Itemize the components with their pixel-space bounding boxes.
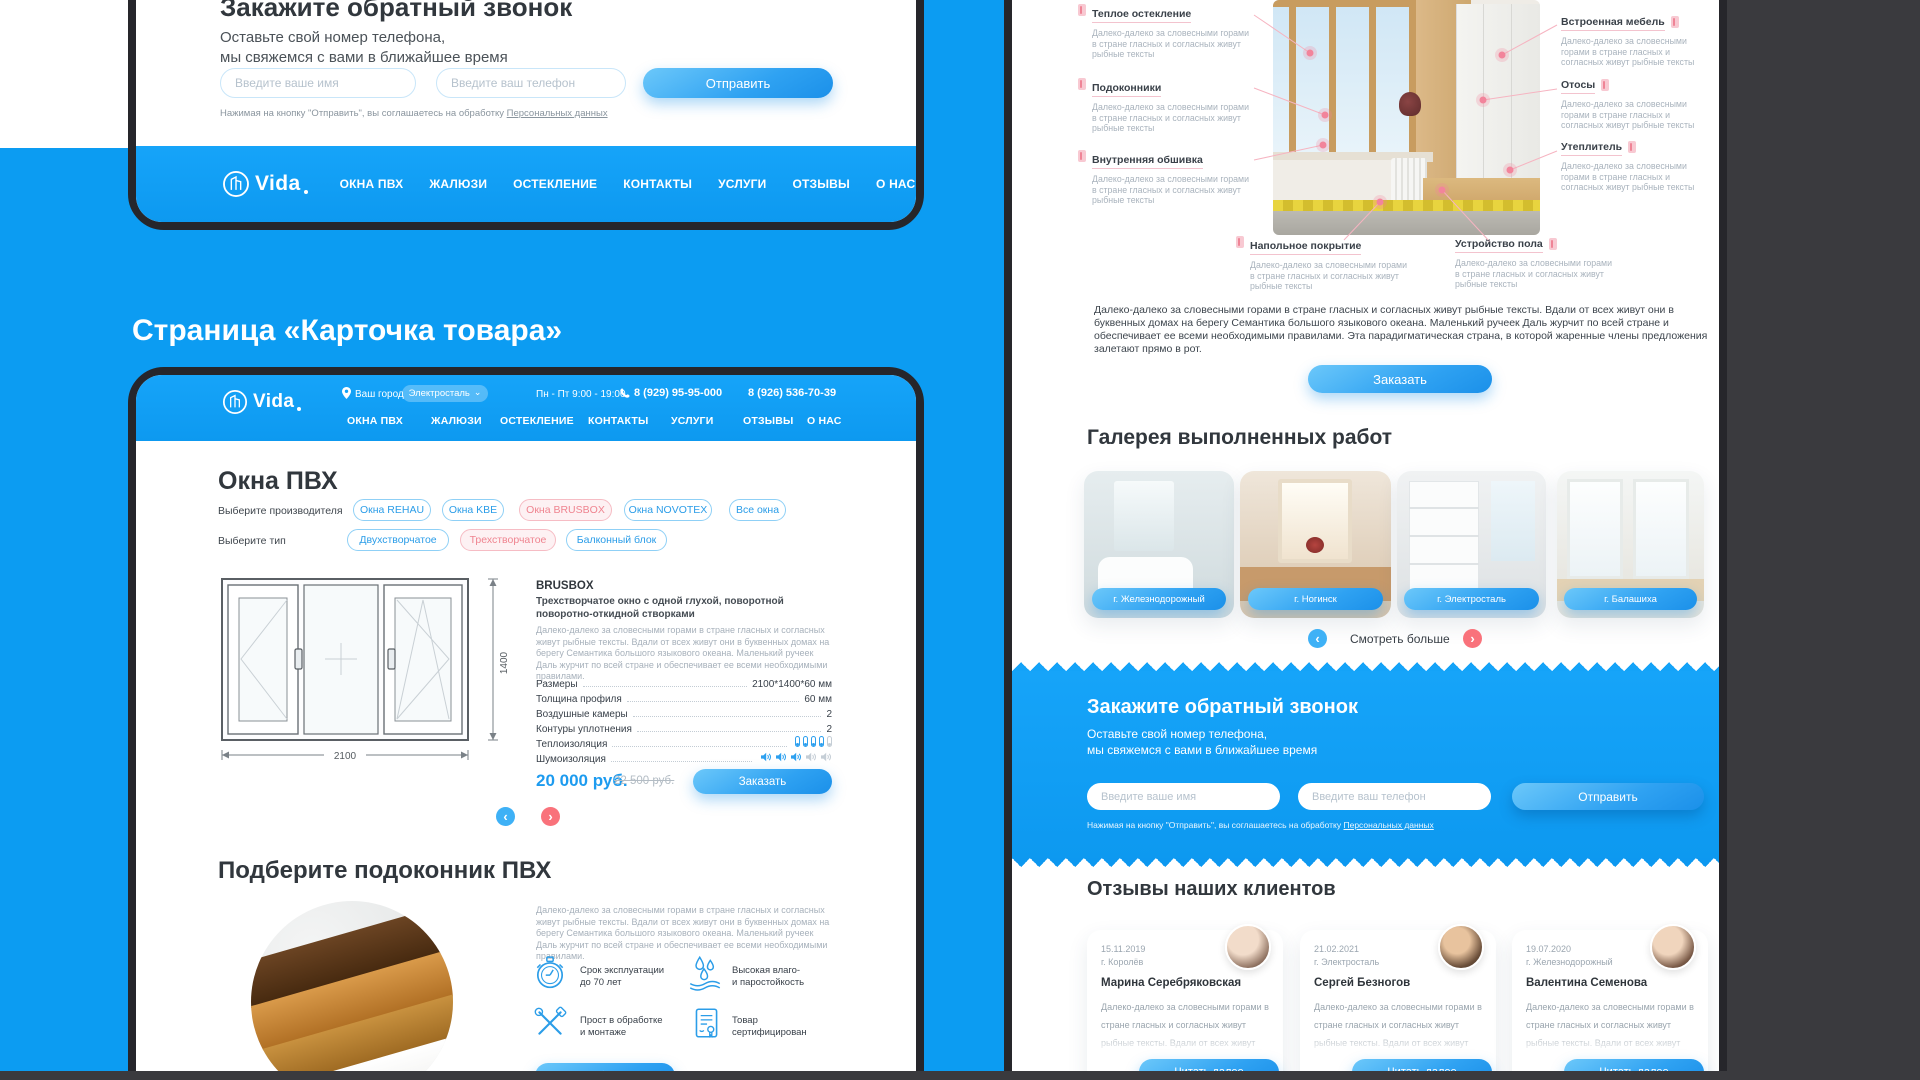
personal-data-link[interactable]: Персональных данных <box>1343 820 1433 830</box>
label-marker-icon <box>1078 78 1086 90</box>
gallery-title: Галерея выполненных работ <box>1087 426 1392 450</box>
review-name: Сергей Безногов <box>1314 977 1410 989</box>
product-old-price: 22 500 руб. <box>614 775 674 787</box>
review-card: 21.02.2021 г. Электросталь Сергей Безног… <box>1300 930 1496 1080</box>
arrow-right-icon: › <box>548 809 552 824</box>
review-card: 19.07.2020 г. Железнодорожный Валентина … <box>1512 930 1708 1080</box>
speaker-icon <box>791 752 802 762</box>
review-text: Далеко-далеко за словесными горами в стр… <box>1101 997 1269 1055</box>
review-text: Далеко-далеко за словесными горами в стр… <box>1526 997 1694 1055</box>
review-date: 21.02.2021 <box>1314 944 1359 954</box>
canvas-corner <box>0 0 130 148</box>
height-dimension: 1400 <box>499 651 510 674</box>
review-city: г. Железнодорожный <box>1526 957 1613 967</box>
gallery-card[interactable]: г. Ногинск <box>1240 471 1391 618</box>
diagram-label: Внутренняя обшивка Далеко-далеко за слов… <box>1078 150 1253 206</box>
review-text: Далеко-далеко за словесными горами в стр… <box>1314 997 1482 1055</box>
diagram-paragraph: Далеко-далеко за словесными горами в стр… <box>1094 304 1719 356</box>
width-dimension: 2100 <box>334 751 357 762</box>
arrow-left-icon: ‹ <box>503 809 507 824</box>
frame-product-page: Vida Ваш город Электросталь ⌄ Пн - Пт 9:… <box>128 367 924 1080</box>
site-header: Vida Ваш город Электросталь ⌄ Пн - Пт 9:… <box>136 375 916 441</box>
window-logo-icon <box>222 389 248 415</box>
gallery-city-pill: г. Ногинск <box>1248 588 1383 610</box>
working-hours: Пн - Пт 9:00 - 19:00 <box>536 389 626 400</box>
label-marker-icon <box>1549 238 1557 250</box>
phone-input[interactable] <box>1298 783 1491 810</box>
filter-brand-rehau[interactable]: Окна REHAU <box>353 499 431 521</box>
diagram-label: Теплое остекление Далеко-далеко за слове… <box>1078 4 1253 60</box>
callback-disclaimer: Нажимая на кнопку "Отправить", вы соглаш… <box>1087 820 1434 830</box>
thermometer-icon <box>811 736 816 747</box>
vida-logo[interactable]: Vida <box>222 389 301 415</box>
city-select[interactable]: Электросталь ⌄ <box>402 385 488 402</box>
diagram-label: Отосы Далеко-далеко за словесными горами… <box>1561 79 1719 131</box>
stopwatch-icon <box>532 955 568 991</box>
nav-kontakty[interactable]: КОНТАКТЫ <box>588 415 648 427</box>
review-city: г. Электросталь <box>1314 957 1379 967</box>
reviews-title: Отзывы наших клиентов <box>1087 878 1336 901</box>
zigzag-edge <box>1012 858 1719 867</box>
label-marker-icon <box>1628 141 1636 153</box>
label-marker-icon <box>1601 79 1609 91</box>
canvas-right-strip <box>1727 0 1920 1080</box>
callback-disclaimer: Нажимая на кнопку "Отправить", вы соглаш… <box>220 108 608 119</box>
phone-icon <box>620 388 630 398</box>
review-date: 19.07.2020 <box>1526 944 1571 954</box>
city-prompt: Ваш город <box>355 389 404 400</box>
footer-nav-kontakty[interactable]: КОНТАКТЫ <box>623 177 692 191</box>
speaker-icon <box>761 752 772 762</box>
nav-osteklenie[interactable]: ОСТЕКЛЕНИЕ <box>500 415 574 427</box>
footer-nav-uslugi[interactable]: УСЛУГИ <box>718 177 766 191</box>
canvas-bottom-strip <box>0 1071 1920 1080</box>
avatar <box>1650 924 1696 970</box>
review-name: Валентина Семенова <box>1526 977 1647 989</box>
phone-input[interactable] <box>436 68 626 98</box>
callback-title: Закажите обратный звонок <box>220 0 572 23</box>
name-input[interactable] <box>220 68 416 98</box>
thermometer-icon <box>827 736 832 747</box>
sill-photo <box>251 901 453 1080</box>
arrow-left-icon: ‹ <box>1315 631 1319 646</box>
thermometer-icon <box>819 736 824 747</box>
callback-subtitle: Оставьте свой номер телефона, мы свяжемс… <box>220 28 508 68</box>
footer-nav-osteklenie[interactable]: ОСТЕКЛЕНИЕ <box>513 177 597 191</box>
filter-type-three[interactable]: Трехстворчатое <box>460 529 556 551</box>
feature-easy-install: Прост в обработкеи монтаже <box>580 1015 663 1039</box>
gallery-prev-button[interactable]: ‹ <box>1308 629 1327 648</box>
home-footer: Vida ОКНА ПВХ ЖАЛЮЗИ ОСТЕКЛЕНИЕ КОНТАКТЫ… <box>136 146 916 222</box>
spec-row: Толщина профиля60 мм <box>536 690 832 705</box>
spec-row-sound: Шумоизоляция <box>536 750 832 765</box>
sound-rating <box>757 752 832 765</box>
water-drops-icon <box>686 953 724 991</box>
spec-row: Воздушные камеры2 <box>536 705 832 720</box>
phone-primary[interactable]: 8 (929) 95-95-000 <box>634 387 722 399</box>
diagram-label: Устройство пола Далеко-далеко за словесн… <box>1455 238 1640 290</box>
design-canvas: Закажите обратный звонок Оставьте свой н… <box>0 0 1920 1080</box>
review-city: г. Королёв <box>1101 957 1143 967</box>
review-date: 15.11.2019 <box>1101 944 1145 954</box>
gallery-next-button[interactable]: › <box>1463 629 1482 648</box>
label-marker-icon <box>1236 236 1244 248</box>
chevron-down-icon: ⌄ <box>474 387 482 398</box>
carousel-prev-button[interactable]: ‹ <box>496 807 515 826</box>
spec-table: Размеры2100*1400*60 мм Толщина профиля60… <box>536 675 832 765</box>
filter-brand-kbe[interactable]: Окна KBE <box>442 499 504 521</box>
spec-row: Размеры2100*1400*60 мм <box>536 675 832 690</box>
callback-subtitle: Оставьте свой номер телефона, мы свяжемс… <box>1087 726 1317 758</box>
catalog-title: Окна ПВХ <box>218 467 338 496</box>
gallery-card[interactable]: г. Электросталь <box>1397 471 1546 618</box>
filter-brand-brusbox[interactable]: Окна BRUSBOX <box>519 499 612 521</box>
submit-button[interactable]: Отправить <box>643 68 833 98</box>
order-button[interactable]: Заказать <box>693 769 832 794</box>
phone-secondary[interactable]: 8 (926) 536-70-39 <box>748 387 836 399</box>
gallery-city-pill: г. Электросталь <box>1404 588 1539 610</box>
product-description: Далеко-далеко за словесными горами в стр… <box>536 625 832 683</box>
label-marker-icon <box>1078 4 1086 16</box>
callback-title: Закажите обратный звонок <box>1087 696 1358 719</box>
nav-otzyvy[interactable]: ОТЗЫВЫ <box>743 415 794 427</box>
feature-moisture: Высокая влаго-и паростойкость <box>732 965 804 989</box>
thermometer-icon <box>795 736 800 747</box>
frame-home-page: Закажите обратный звонок Оставьте свой н… <box>128 0 924 230</box>
sill-description: Далеко-далеко за словесными горами в стр… <box>536 905 832 963</box>
filter-type-balcony[interactable]: Балконный блок <box>566 529 667 551</box>
window-logo-icon <box>222 170 250 198</box>
filter-brand-all[interactable]: Все окна <box>729 499 786 521</box>
submit-button[interactable]: Отправить <box>1512 783 1704 810</box>
arrow-right-icon: › <box>1470 631 1474 646</box>
filter-brand-novotex[interactable]: Окна NOVOTEX <box>624 499 712 521</box>
review-name: Марина Серебряковская <box>1101 977 1241 989</box>
label-marker-icon <box>1078 150 1086 162</box>
speaker-icon <box>821 752 832 762</box>
diagram-label: Утеплитель Далеко-далеко за словесными г… <box>1561 141 1719 193</box>
diagram-label: Напольное покрытие Далеко-далеко за слов… <box>1236 236 1421 292</box>
thermometer-icon <box>803 736 808 747</box>
gallery-card[interactable]: г. Железнодорожный <box>1084 471 1234 618</box>
vida-logo[interactable]: Vida <box>222 170 308 198</box>
label-marker-icon <box>1671 16 1679 28</box>
pin-icon <box>342 387 351 399</box>
carousel-next-button[interactable]: › <box>541 807 560 826</box>
gallery-city-pill: г. Железнодорожный <box>1092 588 1226 610</box>
speaker-icon <box>806 752 817 762</box>
feature-lifetime: Срок эксплуатациидо 70 лет <box>580 965 664 989</box>
spec-row-thermal: Теплоизоляция <box>536 735 832 750</box>
gallery-card[interactable]: г. Балашиха <box>1557 471 1704 618</box>
sill-title: Подберите подоконник ПВХ <box>218 857 551 885</box>
zigzag-edge <box>1012 662 1719 671</box>
footer-nav-okna-pvh[interactable]: ОКНА ПВХ <box>340 177 404 191</box>
brand-filter-label: Выберите производителя <box>218 505 343 517</box>
footer-nav-otzyvy[interactable]: ОТЗЫВЫ <box>792 177 850 191</box>
feature-certified: Товарсертифицирован <box>732 1015 807 1039</box>
certificate-icon <box>688 1005 724 1041</box>
thermal-rating <box>792 736 832 750</box>
nav-uslugi[interactable]: УСЛУГИ <box>671 415 713 427</box>
diagram-label: Подоконники Далеко-далеко за словесными … <box>1078 78 1253 134</box>
diagram-label: Встроенная мебель Далеко-далеко за слове… <box>1561 16 1719 68</box>
nav-zhalyuzi[interactable]: ЖАЛЮЗИ <box>431 415 482 427</box>
product-name: BRUSBOX <box>536 580 594 592</box>
avatar <box>1225 924 1271 970</box>
nav-okna-pvh[interactable]: ОКНА ПВХ <box>347 415 403 427</box>
page-title: Страница «Карточка товара» <box>132 314 562 348</box>
footer-nav-zhalyuzi[interactable]: ЖАЛЮЗИ <box>429 177 487 191</box>
avatar <box>1438 924 1484 970</box>
product-summary: Трехстворчатое окно с одной глухой, пово… <box>536 596 832 621</box>
balcony-photo <box>1273 0 1540 235</box>
filter-type-two[interactable]: Двухстворчатое <box>347 529 449 551</box>
frame-interior-page: Теплое остекление Далеко-далеко за слове… <box>1004 0 1727 1080</box>
review-card: 15.11.2019 г. Королёв Марина Серебряковс… <box>1087 930 1283 1080</box>
name-input[interactable] <box>1087 783 1280 810</box>
gallery-more-label[interactable]: Смотреть больше <box>1350 632 1450 646</box>
callback-section: Закажите обратный звонок Оставьте свой н… <box>1012 671 1719 858</box>
tools-icon <box>532 1005 568 1041</box>
personal-data-link[interactable]: Персональных данных <box>507 108 608 119</box>
spec-row: Контуры уплотнения2 <box>536 720 832 735</box>
type-filter-label: Выберите тип <box>218 535 286 547</box>
window-drawing: 1400 2100 <box>216 571 516 776</box>
speaker-icon <box>776 752 787 762</box>
order-button[interactable]: Заказать <box>1308 365 1492 393</box>
nav-o-nas[interactable]: О НАС <box>807 415 842 427</box>
gallery-city-pill: г. Балашиха <box>1564 588 1697 610</box>
footer-nav-o-nas[interactable]: О НАС <box>876 177 915 191</box>
